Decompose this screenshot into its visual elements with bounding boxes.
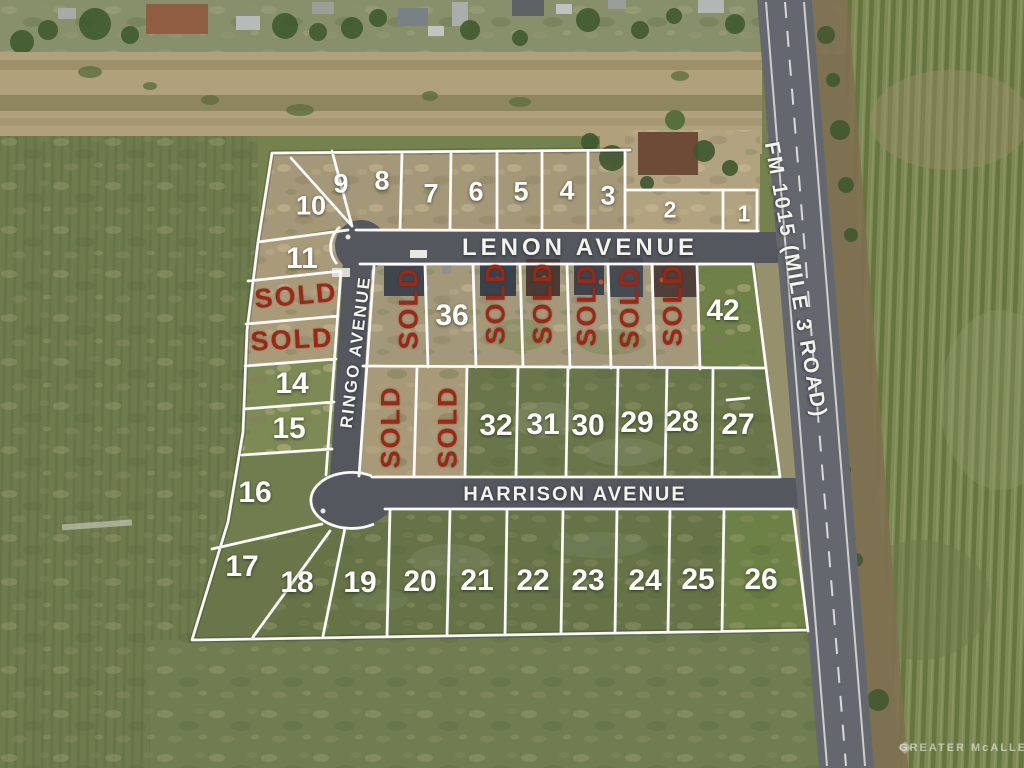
lot-label-21: 21 — [460, 564, 493, 598]
lot-label-1: 1 — [738, 201, 751, 228]
street-label-ringo-avenue: RINGO AVENUE — [337, 275, 376, 430]
lot-label-18: 18 — [280, 566, 313, 600]
lot-label-14: 14 — [275, 367, 308, 401]
sold-label: SOLD — [433, 385, 464, 468]
sold-label: SOLD — [572, 263, 603, 346]
lot-label-5: 5 — [513, 177, 528, 208]
lot-label-28: 28 — [665, 405, 698, 439]
lot-label-7: 7 — [423, 179, 438, 210]
lot-label-31: 31 — [526, 408, 559, 442]
lot-label-10: 10 — [296, 191, 326, 222]
lot-label-16: 16 — [238, 476, 271, 510]
lot-label-4: 4 — [559, 176, 574, 207]
sold-label: SOLD — [528, 261, 559, 344]
lot-label-8: 8 — [374, 166, 389, 197]
sold-label: SOLD — [376, 385, 407, 468]
lot-label-42: 42 — [706, 294, 739, 328]
subdivision-aerial-map: 10 9 8 7 6 5 4 3 2 1 11 SOLD SOLD 14 15 … — [0, 0, 1024, 768]
sold-label: SOLD — [615, 265, 646, 348]
lot-label-20: 20 — [403, 565, 436, 599]
street-label-lenon-avenue: LENON AVENUE — [462, 234, 698, 262]
lot-label-29: 29 — [620, 406, 653, 440]
street-label-fm1015: FM 1015 (MILE 3 ROAD) — [759, 140, 831, 420]
map-label-layer: 10 9 8 7 6 5 4 3 2 1 11 SOLD SOLD 14 15 … — [0, 0, 1024, 768]
sold-label: SOLD — [658, 263, 689, 346]
lot-label-11: 11 — [286, 242, 318, 276]
lot-label-25: 25 — [681, 563, 714, 597]
lot-label-17: 17 — [225, 550, 258, 584]
lot-label-19: 19 — [343, 566, 376, 600]
sold-label: SOLD — [481, 261, 512, 344]
lot-label-26: 26 — [744, 563, 777, 597]
lot-label-22: 22 — [516, 564, 549, 598]
lot-label-27: 27 — [721, 408, 754, 442]
sold-label: SOLD — [250, 322, 335, 357]
lot-label-30: 30 — [571, 409, 604, 443]
lot-label-23: 23 — [571, 564, 604, 598]
lot-label-9: 9 — [333, 169, 348, 200]
lot-label-24: 24 — [628, 564, 661, 598]
lot-label-3: 3 — [600, 181, 615, 212]
lot-label-15: 15 — [272, 412, 305, 446]
lot-label-2: 2 — [664, 197, 677, 224]
lot-label-6: 6 — [468, 177, 483, 208]
street-label-harrison-avenue: HARRISON AVENUE — [463, 484, 686, 507]
lot-label-32: 32 — [479, 409, 512, 443]
sold-label: SOLD — [394, 266, 425, 349]
sold-label: SOLD — [253, 277, 338, 315]
watermark-text: GREATER McALLEN — [899, 742, 1024, 754]
lot-label-36: 36 — [435, 299, 468, 333]
